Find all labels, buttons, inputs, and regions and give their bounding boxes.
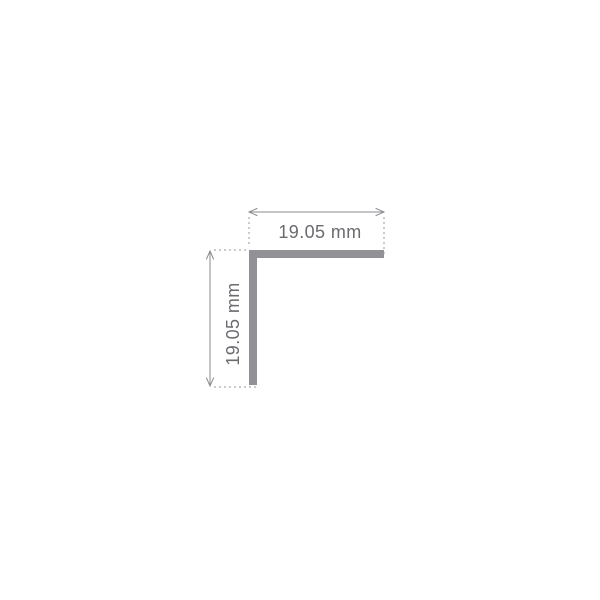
- width-dimension-label: 19.05 mm: [278, 222, 361, 242]
- profile-shape: [249, 250, 384, 385]
- width-dimension: 19.05 mm: [249, 209, 384, 258]
- profile-horizontal-flange: [249, 250, 384, 258]
- height-dimension-label: 19.05 mm: [223, 282, 243, 365]
- profile-vertical-flange: [249, 250, 257, 385]
- drawing-canvas: 19.05 mm 19.05 mm: [0, 0, 600, 600]
- angle-profile-dimension-diagram: 19.05 mm 19.05 mm: [0, 0, 600, 600]
